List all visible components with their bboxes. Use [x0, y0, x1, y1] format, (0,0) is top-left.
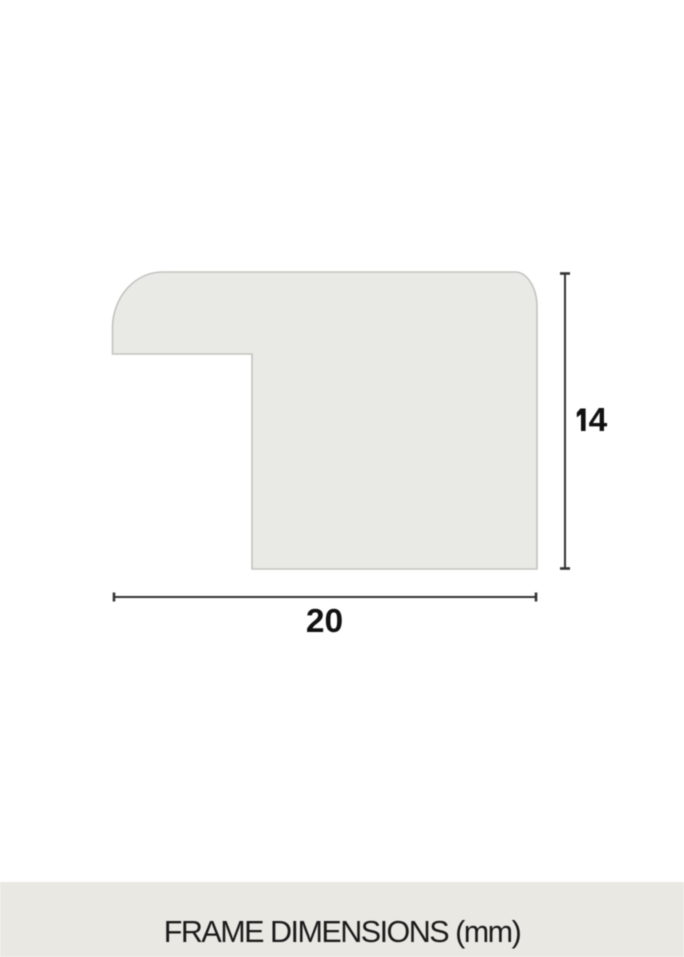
svg-text:20: 20 — [306, 603, 343, 640]
svg-text:4: 4 — [589, 402, 608, 439]
